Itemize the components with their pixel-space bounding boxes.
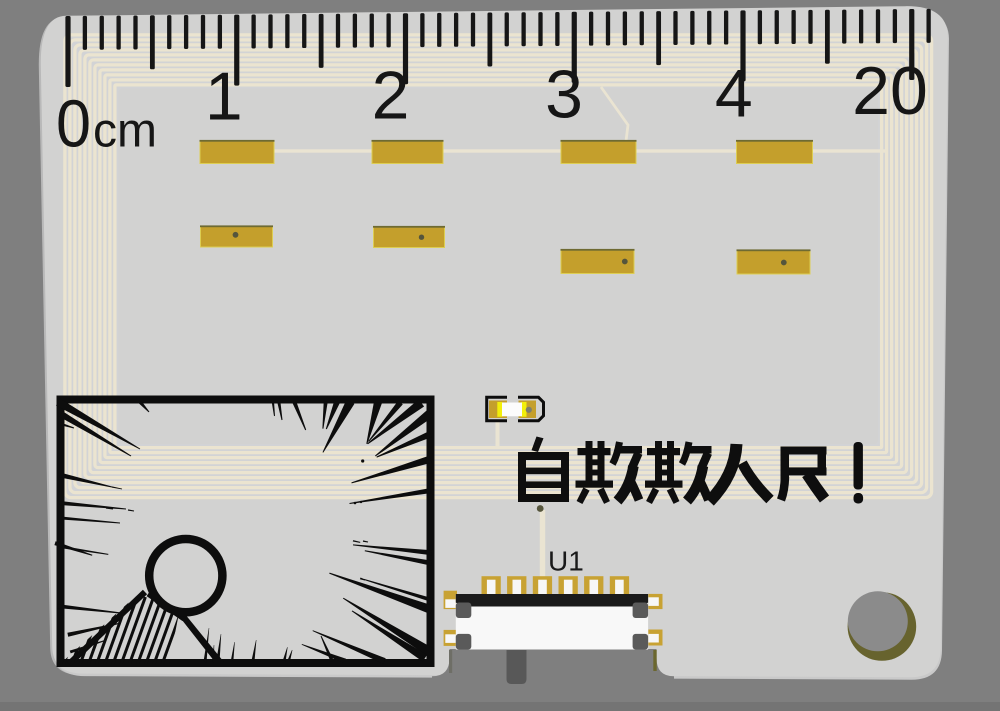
- svg-text:4: 4: [715, 55, 753, 131]
- svg-text:20: 20: [852, 53, 928, 129]
- svg-text:0: 0: [56, 86, 91, 161]
- svg-text:2: 2: [372, 58, 410, 134]
- svg-text:U1: U1: [548, 546, 584, 577]
- svg-text:cm: cm: [93, 105, 157, 158]
- svg-text:1: 1: [205, 58, 243, 134]
- svg-text:3: 3: [545, 57, 583, 133]
